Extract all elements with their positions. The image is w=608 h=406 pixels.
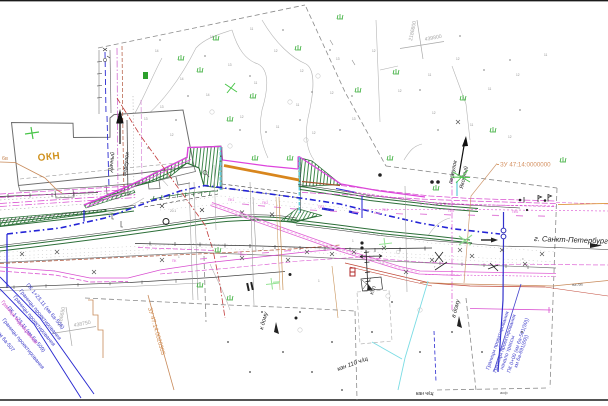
svg-text:11: 11 bbox=[488, 87, 492, 91]
svg-text:12: 12 bbox=[372, 49, 376, 53]
svg-text:12: 12 bbox=[312, 131, 316, 135]
svg-text:11: 11 bbox=[250, 27, 254, 31]
svg-text:14: 14 bbox=[210, 35, 214, 39]
svg-text:12: 12 bbox=[274, 49, 278, 53]
svg-text:12: 12 bbox=[300, 69, 304, 73]
svg-text:12: 12 bbox=[170, 133, 174, 137]
svg-text:ПК2: ПК2 bbox=[262, 201, 268, 205]
svg-text:11: 11 bbox=[296, 103, 300, 107]
svg-text:ПК: ПК bbox=[238, 251, 242, 255]
svg-text:13: 13 bbox=[228, 63, 232, 67]
svg-text:ПК4: ПК4 bbox=[382, 208, 388, 212]
svg-text:ПК6: ПК6 bbox=[512, 210, 518, 214]
svg-text:13: 13 bbox=[160, 105, 164, 109]
svg-text:ЗУ 47:14:0000000: ЗУ 47:14:0000000 bbox=[500, 162, 551, 169]
svg-text:1: 1 bbox=[318, 279, 320, 283]
svg-text:20.1: 20.1 bbox=[170, 209, 176, 213]
svg-text:ПК3: ПК3 bbox=[318, 205, 324, 209]
svg-text:14: 14 bbox=[206, 93, 210, 97]
svg-text:11: 11 bbox=[254, 81, 258, 85]
svg-text:11: 11 bbox=[544, 53, 548, 57]
svg-text:11: 11 bbox=[470, 123, 474, 127]
svg-text:12: 12 bbox=[456, 57, 460, 61]
svg-text:14: 14 bbox=[180, 77, 184, 81]
svg-text:11: 11 bbox=[428, 73, 432, 77]
svg-text:13: 13 bbox=[352, 117, 356, 121]
svg-text:12: 12 bbox=[330, 91, 334, 95]
svg-text:ПК5: ПК5 bbox=[448, 209, 454, 213]
svg-text:12: 12 bbox=[432, 111, 436, 115]
svg-text:14: 14 bbox=[155, 49, 159, 53]
svg-text:13: 13 bbox=[336, 57, 340, 61]
svg-text:6в: 6в bbox=[2, 156, 8, 162]
svg-text:ОКН: ОКН bbox=[37, 151, 61, 164]
svg-text:ПК: ПК bbox=[172, 259, 176, 263]
svg-text:12: 12 bbox=[508, 135, 512, 139]
svg-text:асф: асф bbox=[500, 390, 508, 395]
svg-text:2: 2 bbox=[262, 247, 264, 251]
svg-text:12: 12 bbox=[398, 89, 402, 93]
svg-text:11: 11 bbox=[276, 125, 280, 129]
svg-text:12: 12 bbox=[240, 115, 244, 119]
svg-text:1: 1 bbox=[352, 239, 354, 243]
svg-text:13: 13 bbox=[144, 117, 148, 121]
svg-text:1: 1 bbox=[178, 255, 180, 259]
svg-text:12: 12 bbox=[516, 73, 520, 77]
svg-text:на Пб: на Пб bbox=[572, 282, 583, 287]
svg-text:кан ч/щ: кан ч/щ bbox=[416, 391, 434, 397]
svg-text:ПК1: ПК1 bbox=[228, 198, 234, 202]
